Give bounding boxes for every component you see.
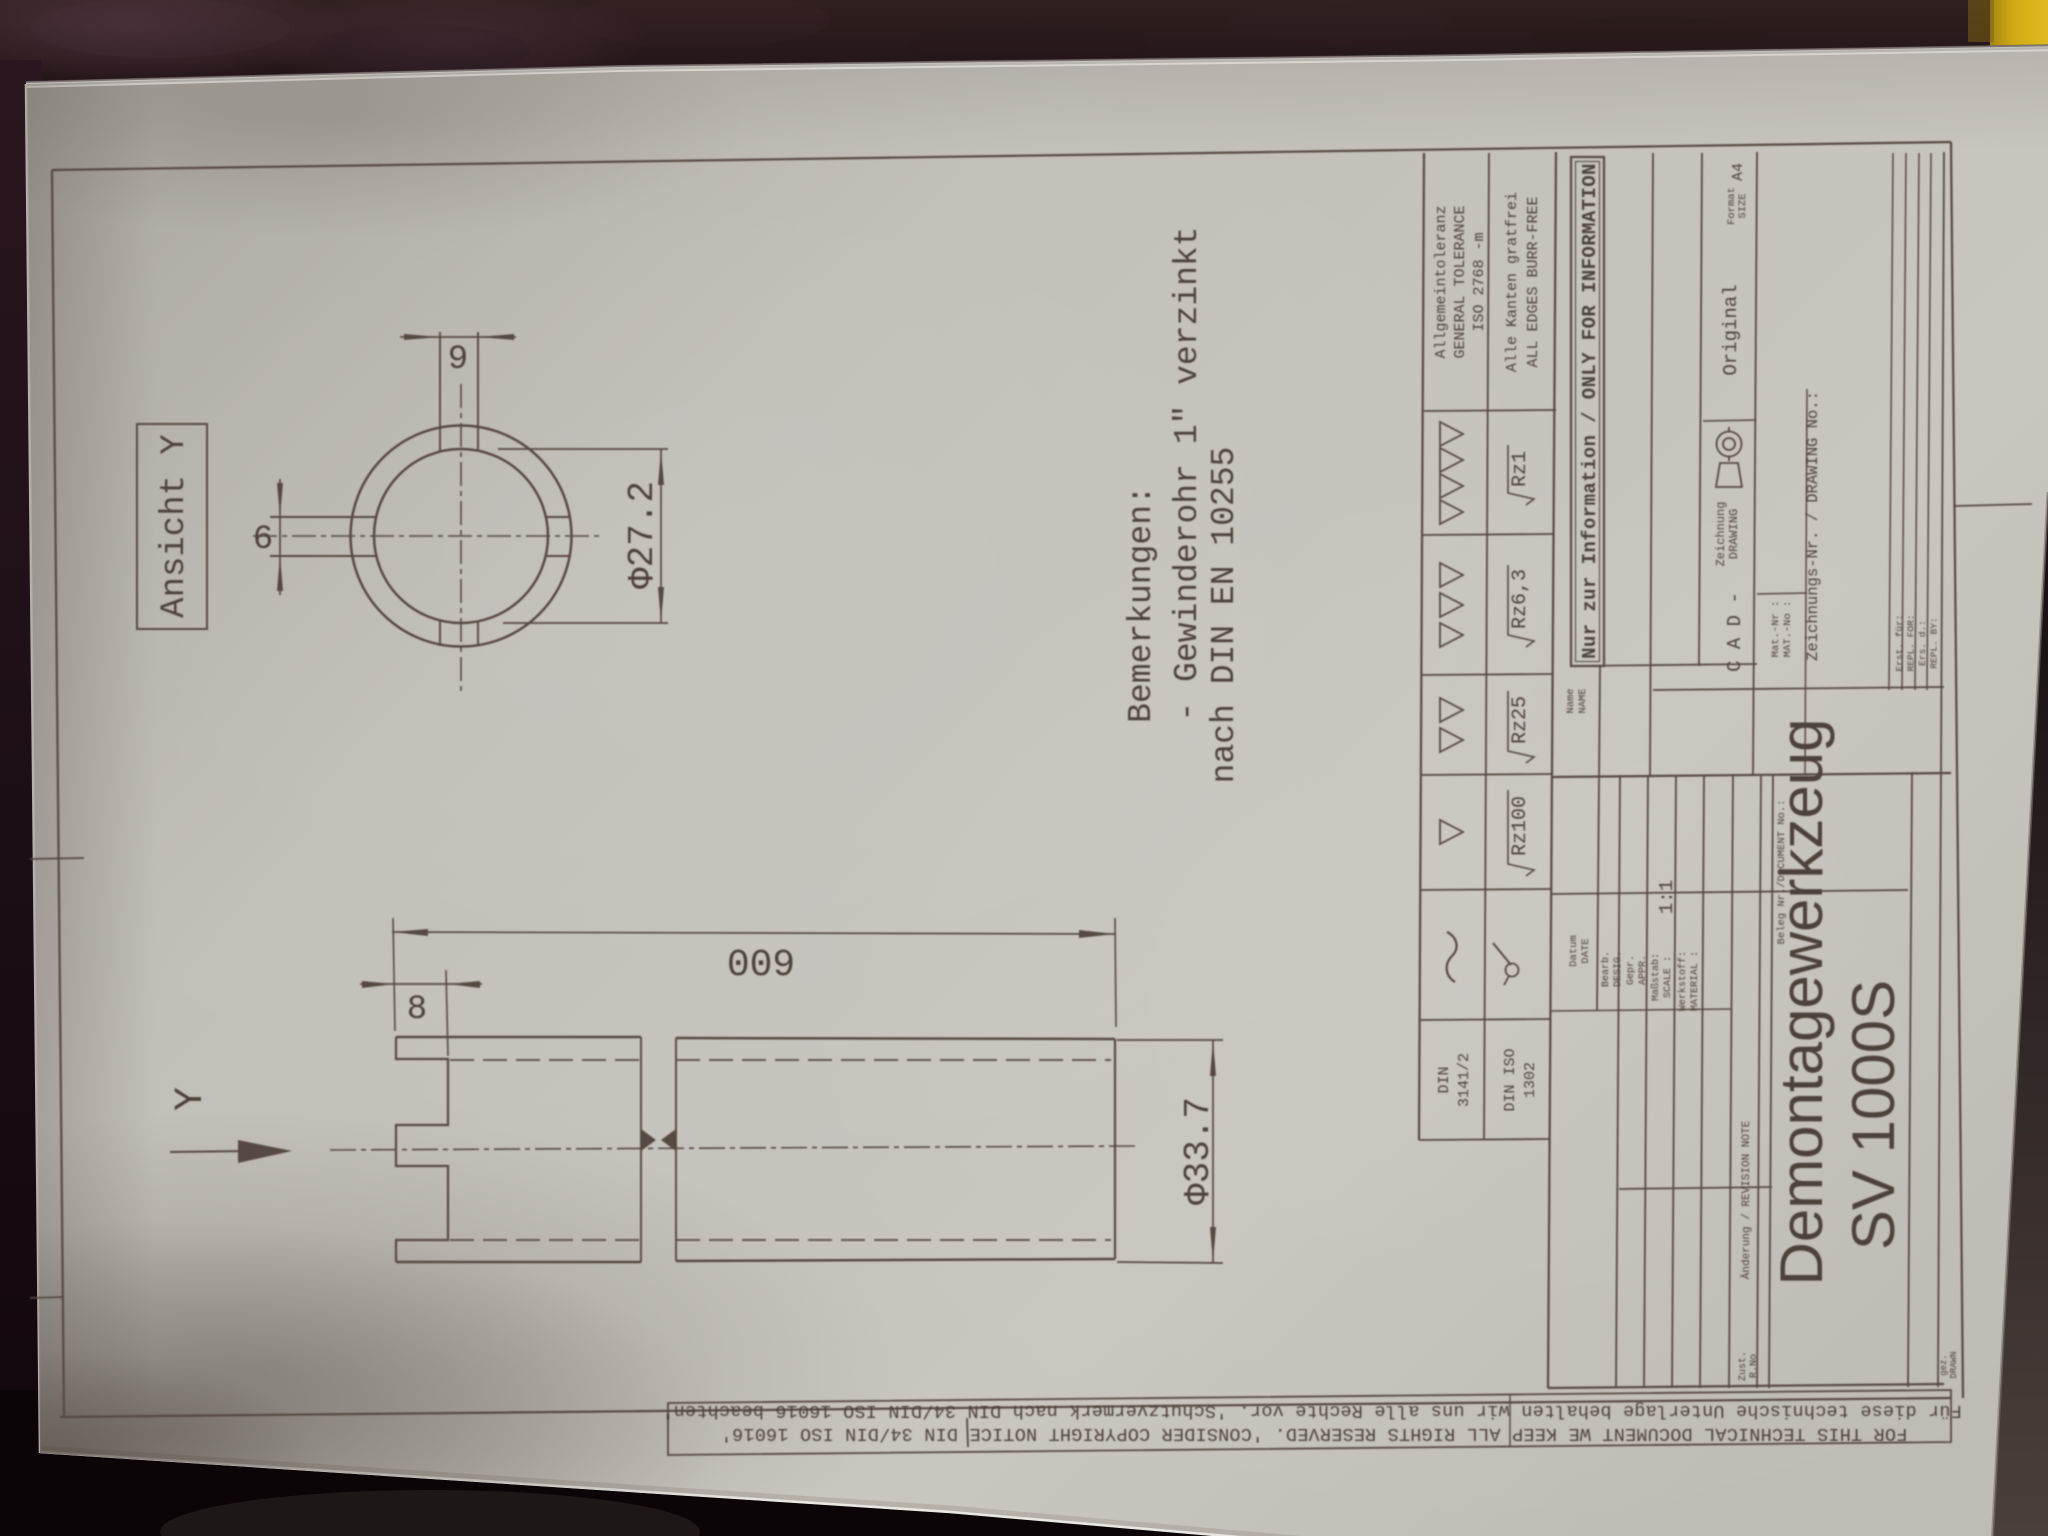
svg-text:C A D -: C A D - [1724,592,1746,672]
svg-text:6: 6 [253,521,273,559]
svg-text:Rz1: Rz1 [1509,451,1532,487]
svg-text:A4: A4 [1730,163,1747,181]
svg-text:SV 1000S: SV 1000S [1840,980,1907,1250]
svg-text:Rz25: Rz25 [1509,696,1532,744]
svg-text:Original: Original [1720,284,1742,375]
svg-text:Rz100: Rz100 [1509,796,1532,856]
svg-text:Φ27.2: Φ27.2 [622,481,663,589]
svg-text:NameNAME: NameNAME [1565,688,1589,713]
svg-text:Ansicht Y: Ansicht Y [156,434,194,618]
svg-text:- Gewinderohr 1" verzinkt: - Gewinderohr 1" verzinkt [1169,226,1206,721]
svg-text:Rz6,3: Rz6,3 [1509,569,1532,629]
svg-text:8: 8 [407,991,427,1029]
svg-text:Zust.R.No: Zust.R.No [1738,1351,1760,1381]
svg-text:Erst. für:REPL. FOR:Ers. d.:RE: Erst. für:REPL. FOR:Ers. d.:REPL. BY: [1894,614,1940,671]
svg-text:gez.DRAWN: gez.DRAWN [1939,1351,1959,1378]
svg-text:FOR THIS TECHNICAL DOCUMENT WE: FOR THIS TECHNICAL DOCUMENT WE KEEP ALL … [721,1423,1908,1444]
svg-text:Φ33.7: Φ33.7 [1178,1097,1219,1205]
svg-text:Demontagewerkzeug: Demontagewerkzeug [1768,719,1835,1286]
svg-text:Änderung / REVISION NOTE: Änderung / REVISION NOTE [1740,1120,1753,1279]
svg-text:nach DIN EN 10255: nach DIN EN 10255 [1206,447,1243,784]
svg-text:Y: Y [169,1087,214,1111]
svg-text:ZeichnungDRAWING: ZeichnungDRAWING [1714,502,1741,567]
svg-text:Bemerkungen:: Bemerkungen: [1123,485,1160,723]
svg-text:600: 600 [727,938,795,981]
svg-text:Für diese technische Unterlage: Für diese technische Unterlage behalten … [662,1400,1962,1421]
svg-text:Gepr.APPR.: Gepr.APPR. [1626,955,1649,985]
svg-text:9: 9 [448,341,468,379]
svg-text:Mat.-Nr :MAT.-No :: Mat.-Nr :MAT.-No : [1770,601,1794,658]
svg-text:Zeichnungs-Nr. / DRAWING No.:: Zeichnungs-Nr. / DRAWING No.: [1804,391,1822,661]
svg-text:DatumDATE: DatumDATE [1568,935,1592,967]
svg-text:Nur zur Information / ONLY FOR: Nur zur Information / ONLY FOR INFORMATI… [1579,163,1601,659]
svg-text:1:1: 1:1 [1656,880,1678,914]
